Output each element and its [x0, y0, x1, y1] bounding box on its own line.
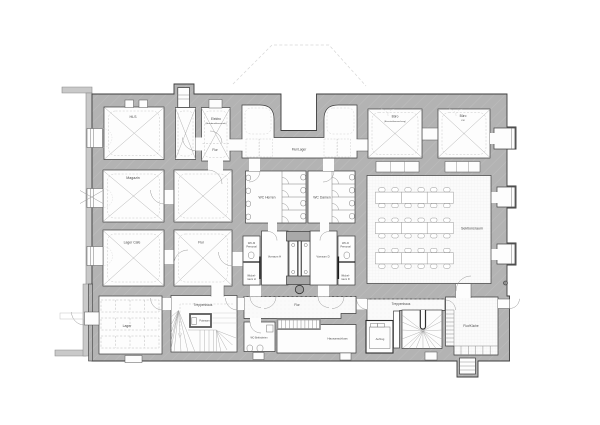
svg-text:Flur/Lager: Flur/Lager — [292, 148, 307, 152]
svg-text:raum D: raum D — [341, 277, 350, 281]
svg-text:(Brandmeldezentrale): (Brandmeldezentrale) — [205, 122, 226, 125]
svg-text:Treppenhaus: Treppenhaus — [194, 303, 213, 307]
svg-text:Magazin: Magazin — [126, 176, 140, 180]
svg-text:Personal: Personal — [340, 245, 351, 249]
svg-text:Flur/Küche: Flur/Küche — [463, 324, 479, 328]
svg-text:(Einsatzüberwachung): (Einsatzüberwachung) — [384, 120, 406, 123]
svg-text:Vorraum D: Vorraum D — [316, 255, 329, 259]
svg-text:WC-M: WC-M — [248, 241, 255, 245]
svg-text:Putzraum: Putzraum — [199, 320, 209, 323]
svg-text:Treppenhaus: Treppenhaus — [392, 302, 411, 306]
svg-text:Wickel-: Wickel- — [341, 274, 350, 278]
svg-text:Personal: Personal — [246, 245, 257, 249]
svg-text:Lager: Lager — [123, 324, 133, 328]
svg-text:WC-D: WC-D — [342, 241, 349, 245]
svg-text:Flur: Flur — [294, 303, 300, 307]
svg-text:IOK: IOK — [461, 120, 465, 122]
svg-text:Lager Cafe: Lager Cafe — [124, 241, 141, 245]
svg-text:raum H: raum H — [247, 277, 256, 281]
svg-text:WC Herren: WC Herren — [259, 196, 276, 200]
svg-text:Büro: Büro — [392, 115, 399, 119]
svg-text:Hausanschluss: Hausanschluss — [327, 337, 348, 341]
svg-text:WC Damen: WC Damen — [313, 196, 331, 200]
svg-text:Büro: Büro — [460, 114, 467, 118]
svg-text:WC-Behinderten: WC-Behinderten — [251, 337, 269, 340]
svg-text:Vorraum H: Vorraum H — [268, 255, 281, 259]
svg-text:Wickel-: Wickel- — [247, 274, 256, 278]
svg-text:Sektionsraum: Sektionsraum — [461, 227, 483, 231]
svg-text:Aufzug: Aufzug — [376, 337, 385, 341]
svg-text:Flur: Flur — [212, 148, 218, 152]
svg-text:HLS: HLS — [130, 115, 138, 119]
svg-text:Elektro: Elektro — [211, 117, 221, 121]
svg-text:Flur: Flur — [198, 241, 205, 245]
